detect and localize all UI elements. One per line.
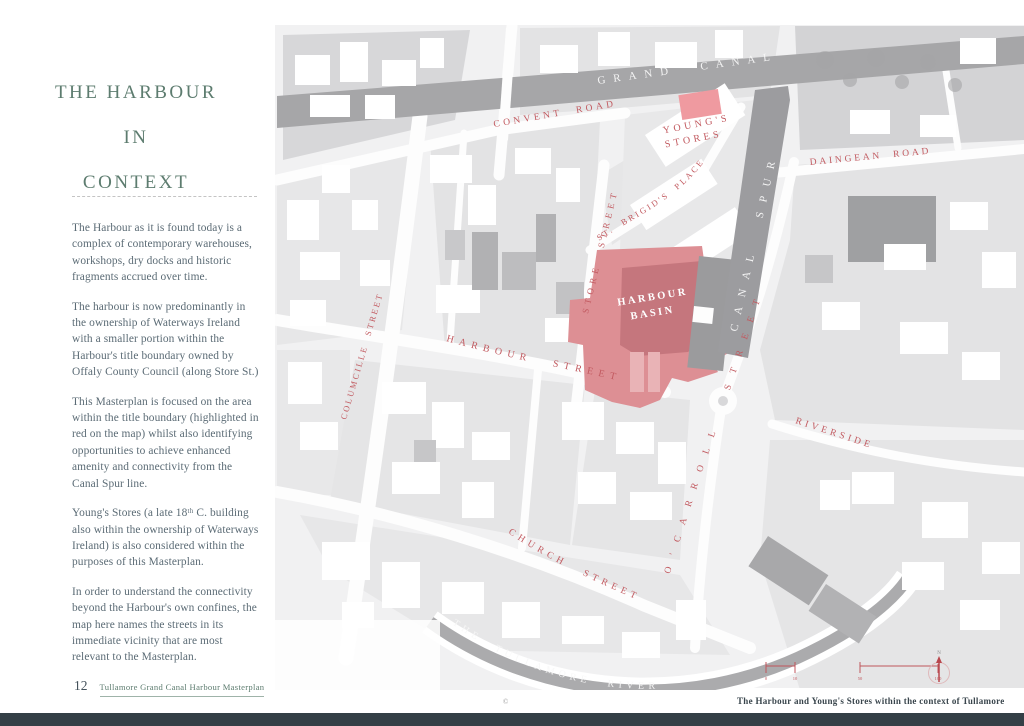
map-canvas: GRAND CANAL CONVENT ROAD DAINGEAN ROAD C… [275,25,1024,700]
paragraph-3: This Masterplan is focused on the area w… [72,394,262,492]
footer-title: Tullamore Grand Canal Harbour Masterplan [100,682,265,697]
paragraph-1: The Harbour as it is found today is a co… [72,220,262,286]
paragraph-2: The harbour is now predominantly in the … [72,299,262,381]
page-title-line2: IN [40,115,232,160]
title-divider [72,196,257,197]
bottom-edge-bar [0,713,1024,726]
copyright-mark: © [503,698,509,706]
svg-text:10: 10 [793,676,798,681]
page-number: 12 [74,678,88,694]
page-title: THE HARBOUR IN CONTEXT [40,70,232,205]
page-title-line3: CONTEXT [40,160,232,205]
body-text: The Harbour as it is found today is a co… [72,220,262,679]
svg-text:50: 50 [858,676,863,681]
document-page: GRAND CANAL CONVENT ROAD DAINGEAN ROAD C… [0,0,1024,726]
paragraph-5: In order to understand the connectivity … [72,584,262,666]
page-title-line1: THE HARBOUR [40,70,232,115]
north-letter: N [937,651,941,656]
map-caption: The Harbour and Young's Stores within th… [737,696,1005,706]
sidebar: THE HARBOUR IN CONTEXT The Harbour as it… [0,0,272,726]
paragraph-4: Young's Stores (a late 18ᵗʰ C. building … [72,505,262,571]
page-footer: 12 Tullamore Grand Canal Harbour Masterp… [74,678,264,697]
